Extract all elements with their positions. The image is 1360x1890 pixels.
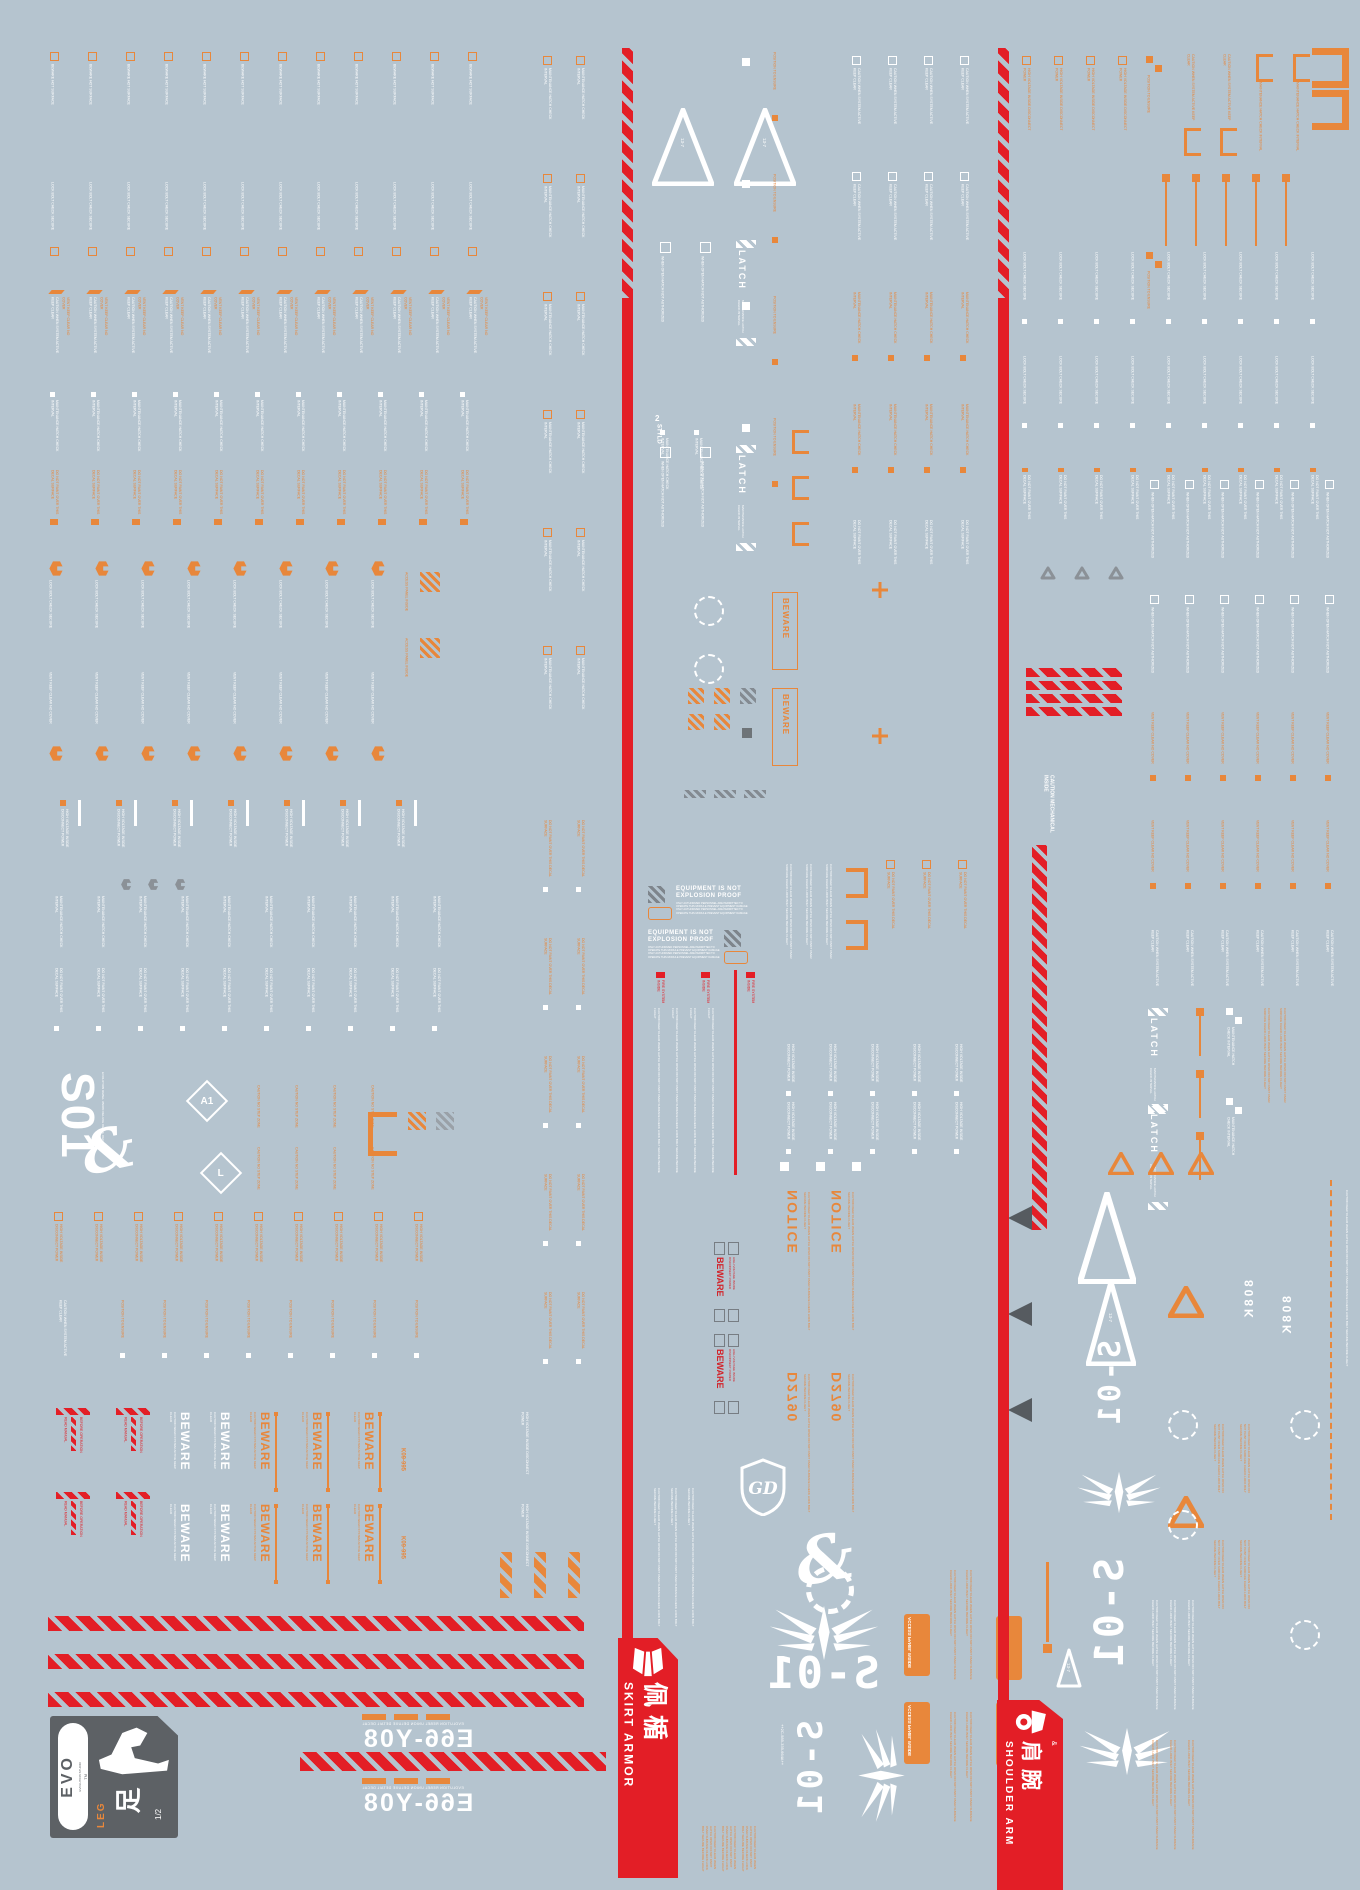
decal-sqtext: WHEN OPEN HATCH NOT AUTHORIZED <box>1290 480 1299 562</box>
decal-sqtext: HIGH VOLTAGE INSIDE DISCONNECT POWER <box>870 1044 879 1096</box>
decal-fire: FIRE SYSTEM INSIDE <box>701 972 710 1012</box>
decal-vhaz <box>500 1552 512 1598</box>
decal-vtext: 808K <box>1242 1280 1256 1405</box>
decal-sqtext: MAINTENANCE HATCH CHECK INTERVAL <box>576 646 585 726</box>
decal-vtext: DO NOT PAINT OVER THIS DECAL SURFACE <box>852 520 861 576</box>
decal-cbr <box>368 1112 397 1156</box>
decal-sqtext: HIGH VOLTAGE INSIDE DISCONNECT POWER <box>414 1212 423 1272</box>
decal-sqtext: CAUTION WHEN SYSTEM ACTIVE KEEP CLEAR <box>924 172 933 250</box>
decal-vtext: CAUTION WHEN SYSTEM ACTIVE KEEP CLEAR <box>1185 930 1194 990</box>
decal-sqtext: LOCK BOLT CHECK SECURE <box>1094 252 1099 324</box>
decal-sqtext: POSITION TO ENSURE <box>330 1300 335 1358</box>
decal-vtext: DO NOT PAINT OVER THIS DECAL SURFACE <box>960 520 969 576</box>
decal-vtext: CAUTION MECHANICAL INSIDE <box>1042 775 1055 835</box>
decal-loll <box>1162 174 1170 246</box>
decal-vtext: CAUTION NO STEP ZONE <box>332 1085 337 1137</box>
decal-sqtext: LOCK BOLT CHECK SECURE <box>1058 252 1063 324</box>
decal-sqtext: DO NOT PAINT OVER THIS DECAL SURFACE <box>1166 468 1175 531</box>
decal-micro: CAUTION KEEP CLEAR WHEN HATCH OPEN DO NO… <box>948 1570 956 1690</box>
decal-bar <box>1043 1644 1052 1653</box>
decal-sqtext: DO NOT PAINT OVER THIS DECAL SURFACE <box>1274 468 1283 531</box>
decal-sqtext: LOCK BOLT CHECK SECURE <box>1130 356 1135 428</box>
decal-sqtext: DO NOT PAINT OVER THIS DECAL SURFACE <box>132 470 141 525</box>
decal-loll <box>1192 174 1200 246</box>
decal-sqtext: WHEN OPEN HATCH NOT AUTHORIZED <box>1255 595 1264 677</box>
decal-sqtext: HIGH VOLTAGE INSIDE DISCONNECT POWER <box>954 1102 963 1154</box>
decal-sqtext: MAINTENANCE HATCH CHECK INTERVAL <box>337 392 346 452</box>
decal-bewcol: CAUTION WHEN SYSTEM ACTIVE KEEP CLEARBEW… <box>248 1504 278 1590</box>
decal-bar <box>134 800 137 826</box>
decal-slashtext: CAUTION WHEN SYSTEM ACTIVE KEEP CLEARVEN… <box>88 290 108 355</box>
decal-equip: EQUIPMENT IS NOTEXPLOSION PROOFONLY AUTH… <box>648 930 748 964</box>
decal-sqtext: POSITION TO ENSURE <box>772 418 778 487</box>
decal-micro: CAUTION KEEP CLEAR WHEN HATCH OPEN DO NO… <box>948 1712 956 1832</box>
decal-s01v: S-01 <box>1096 1340 1126 1458</box>
decal-bar <box>852 1162 861 1171</box>
decal-hex: VENT KEEP CLEAR NO COVER <box>232 672 249 762</box>
decal-hatch <box>714 688 730 704</box>
decal-sqtext: LOCK BOLT CHECK SECURE <box>240 182 249 256</box>
decal-vtext: CAUTION WHEN SYSTEM ACTIVE KEEP CLEAR <box>1150 930 1159 990</box>
decal-sqtext: CAUTION WHEN SYSTEM ACTIVE KEEP CLEAR <box>852 56 861 134</box>
decal-sqtext: LOCK BOLT CHECK SECURE <box>1058 356 1063 428</box>
decal-sqtext: BEWARE HOT SURFACE <box>240 52 249 134</box>
decal-bar <box>742 180 750 188</box>
decal-sqtext: DO NOT PAINT OVER THIS DECAL SURFACE <box>922 860 931 930</box>
evo-tm-mark: TM <box>83 1774 88 1780</box>
decal-hatch <box>688 688 704 704</box>
decal-sqtext: BEWARE HOT SURFACE <box>278 52 287 134</box>
decal-sqtext: MAINTENANCE HATCH CHECK INTERVAL <box>576 410 585 490</box>
decal-bewcol: CAUTION WHEN SYSTEM ACTIVE KEEP CLEARBEW… <box>352 1412 382 1498</box>
decal-sqtext: LOCK BOLT CHECK SECURE <box>316 182 325 256</box>
decal-sqtext: LOCK BOLT CHECK SECURE <box>430 182 439 256</box>
decal-hatch <box>744 790 766 798</box>
decal-sqtext: DO NOT PAINT OVER THIS DECAL SURFACE <box>886 860 895 930</box>
evo-part-label: LEG <box>96 1778 107 1828</box>
decal-hatch <box>740 688 756 704</box>
decal-sqtext: MAINTENANCE HATCH CHECK INTERVAL <box>924 404 933 473</box>
decal-micro: CAUTION KEEP CLEAR WHEN HATCH OPEN DO NO… <box>1344 1190 1348 1390</box>
decal-vtext: HIGH VOLTAGE INSIDE DISCONNECT POWER <box>520 1504 529 1574</box>
decal-access: ACCESS PANEL INSIDE <box>904 1702 930 1764</box>
decal-sqtext: DO NOT PAINT OVER THIS DECAL SURFACE <box>1310 468 1319 531</box>
decal-sqtext: LOCK BOLT CHECK SECURE <box>1094 356 1099 428</box>
decal-sqtext: DO NOT PAINT OVER THIS DECAL SURFACE <box>54 968 63 1031</box>
decal-slashtext: CAUTION WHEN SYSTEM ACTIVE KEEP CLEARVEN… <box>354 290 374 355</box>
decal-sqtext: MAINTENANCE HATCH CHECK INTERVAL <box>173 392 182 452</box>
decal-vtext: K09-995 <box>398 1536 405 1598</box>
decal-micro: CAUTION KEEP CLEAR WHEN HATCH OPEN DO NO… <box>740 1826 756 1876</box>
decal-vtext: NOTICE <box>828 1190 845 1340</box>
decal-sqtext: HIGH VOLTAGE INSIDE DISCONNECT POWER <box>94 1212 103 1272</box>
decal-micro: CAUTION KEEP CLEAR WHEN HATCH OPEN DO NO… <box>1212 1540 1224 1610</box>
decal-sqtext: WHEN OPEN HATCH NOT AUTHORIZED <box>1185 595 1194 677</box>
decal-bar <box>816 1162 825 1171</box>
decal-hazbar <box>1026 668 1122 677</box>
decal-latch: LATCHMAINTENANCE HATCH CHECK INTERVAL <box>736 445 756 551</box>
decal-vtext: MAINTENANCE HATCH CHECK INTERVAL <box>54 896 63 954</box>
decal-micro: CAUTION KEEP CLEAR WHEN HATCH OPEN DO NO… <box>802 1192 810 1332</box>
decal-vtext: CAUTION NO STEP ZONE <box>294 1147 299 1199</box>
decal-sqtext: MAINTENANCE HATCH CHECK INTERVAL <box>888 404 897 473</box>
decal-vhaz <box>568 1552 580 1598</box>
decal-hex: LOCK BOLT CHECK SECURE <box>278 560 295 650</box>
decal-circ <box>1168 1410 1198 1440</box>
decal-sqtext: MAINTENANCE HATCH CHECK INTERVAL <box>543 174 552 254</box>
decal-sqtext: CAUTION WHEN SYSTEM ACTIVE KEEP CLEAR <box>960 56 969 134</box>
decal-sqtext: DO NOT PAINT OVER THIS DECAL SURFACE <box>1094 468 1103 531</box>
decal-sqtext: MAINTENANCE HATCH CHECK INTERVAL <box>888 292 897 361</box>
decal-hazbar <box>1026 707 1122 716</box>
decal-latch: LATCHMAINTENANCE HATCH CHECK INTERVAL <box>736 240 756 346</box>
decal-sqtext: DO NOT PAINT OVER THIS DECAL SURFACE <box>1022 468 1031 531</box>
decal-sqtext: LOCK BOLT CHECK SECURE <box>88 182 97 256</box>
decal-readman: READ MANUALBEFORE OPERATION <box>56 1408 90 1457</box>
decal-hazbar <box>48 1616 584 1631</box>
decal-wing <box>1076 1470 1162 1520</box>
decal-sqtext: DO NOT PAINT OVER THIS DECAL SURFACE <box>180 968 189 1031</box>
decal-sqtext: DO NOT PAINT OVER THIS DECAL SURFACE <box>460 470 469 525</box>
decal-hex: VENT KEEP CLEAR NO COVER <box>186 672 203 762</box>
decal-sqtext: CAUTION WHEN SYSTEM ACTIVE KEEP CLEAR <box>960 172 969 250</box>
decal-sqtext: DO NOT PAINT OVER THIS DECAL SURFACE <box>543 938 552 1010</box>
decal-vtext: MAINTENANCE HATCH CHECK INTERVAL <box>180 896 189 954</box>
decal-circ <box>1168 1510 1198 1540</box>
decal-micro: CAUTION KEEP CLEAR WHEN HATCH OPEN DO NO… <box>784 864 792 959</box>
decal-bar <box>302 800 305 826</box>
decal-cbr <box>1256 54 1273 82</box>
decal-hex: VENT KEEP CLEAR NO COVER <box>140 672 157 762</box>
decal-sqtext: HIGH VOLTAGE INSIDE DISCONNECT POWER <box>396 800 405 849</box>
decal-sqtext: LOCK BOLT CHECK SECURE <box>1022 356 1027 428</box>
decal-sqtext: MAINTENANCE HATCH CHECK INTERVAL <box>296 392 305 452</box>
decal-sqtext: LOCK BOLT CHECK SECURE <box>202 182 211 256</box>
decal-e66: EVOLUTION REBEL UNION DELUXE DETAIL DECA… <box>362 1714 473 1751</box>
decal-vtext: CAUTION NO STEP ZONE <box>256 1085 261 1137</box>
decal-sqtext: DO NOT PAINT OVER THIS DECAL SURFACE <box>173 470 182 525</box>
decal-bewcol: CAUTION WHEN SYSTEM ACTIVE KEEP CLEARBEW… <box>208 1412 232 1498</box>
decal-sqtext: DO NOT PAINT OVER THIS DECAL SURFACE <box>1130 468 1139 531</box>
decal-sqtext: VENT KEEP CLEAR NO COVER <box>1220 712 1226 781</box>
decal-sqtext: VENT KEEP CLEAR NO COVER <box>1325 712 1331 781</box>
decal-readman: READ MANUALBEFORE OPERATION <box>56 1492 90 1541</box>
decal-sqtext: MAINTENANCE HATCH CHECK INTERVAL <box>543 646 552 726</box>
decal-vtext: DO NOT PAINT OVER THIS DECAL SURFACE <box>924 520 933 576</box>
decal-sqtext: VENT KEEP CLEAR NO COVER <box>1255 712 1261 781</box>
decal-s01v: S-01 <box>1090 1558 1130 1718</box>
decal-sqtext: DO NOT PAINT OVER THIS DECAL SURFACE <box>96 968 105 1031</box>
decal-slashtext: CAUTION WHEN SYSTEM ACTIVE KEEP CLEARVEN… <box>164 290 184 355</box>
decal-sqtext: WHEN OPEN HATCH NOT AUTHORIZED <box>660 242 671 344</box>
decal-micro: CAUTION KEEP CLEAR WHEN HATCH OPEN DO NO… <box>686 1488 694 1628</box>
decal-circ <box>694 596 724 626</box>
decal-sqtext: HIGH VOLTAGE INSIDE DISCONNECT POWER <box>870 1102 879 1154</box>
decal-bar <box>78 800 81 826</box>
decal-sqtext: HIGH VOLTAGE INSIDE DISCONNECT POWER <box>1118 56 1127 134</box>
shoulder-arm-label-en: SHOULDER ARM <box>1003 1741 1014 1881</box>
decal-hazbar <box>1026 681 1122 690</box>
decal-hatch <box>420 638 440 658</box>
decal-micro: CAUTION KEEP CLEAR WHEN HATCH OPEN DO NO… <box>802 1374 810 1514</box>
decal-bar <box>742 728 752 738</box>
decal-bewcol: CAUTION WHEN SYSTEM ACTIVE KEEP CLEARBEW… <box>208 1504 232 1590</box>
decal-cbr <box>1220 128 1237 156</box>
decal-micro: CAUTION KEEP CLEAR WHEN HATCH OPEN DO NO… <box>706 1008 714 1173</box>
decal-warntri <box>1188 1152 1214 1180</box>
decal-tri <box>1074 566 1090 585</box>
decal-vtext: D2790 <box>784 1372 801 1522</box>
decal-readman: READ MANUALBEFORE OPERATION <box>116 1408 150 1457</box>
decal-loll <box>1222 174 1230 246</box>
decal-sqtext: CAUTION WHEN SYSTEM ACTIVE KEEP CLEAR <box>924 56 933 134</box>
decal-hex: LOCK BOLT CHECK SECURE <box>370 560 387 650</box>
decal-bewcol: CAUTION WHEN SYSTEM ACTIVE KEEP CLEARBEW… <box>168 1412 192 1498</box>
decal-wing <box>1078 1726 1176 1782</box>
decal-sqtext: BEWARE HOT SURFACE <box>88 52 97 134</box>
decal-circ <box>1290 1410 1320 1440</box>
decal-vtext: CAUTION WHEN SYSTEM ACTIVE KEEP CLEAR <box>1325 930 1334 990</box>
decal-sqtext: VENT KEEP CLEAR NO COVER <box>1150 712 1156 781</box>
decal-hazbar <box>48 1654 584 1669</box>
decal-hex: LOCK BOLT CHECK SECURE <box>140 560 157 650</box>
shoulder-arm-ampersand: & <box>1050 1741 1057 1761</box>
decal-sqtext: POSITION TO ENSURE <box>204 1300 209 1358</box>
decal-vtext: MAINTENANCE HATCH CHECK INTERVAL <box>222 896 231 954</box>
decal-cbr <box>1184 128 1201 156</box>
decal-sqtext: VENT KEEP CLEAR NO COVER <box>1255 820 1261 889</box>
decal-vtext: MAINTENANCE HATCH CHECK INTERVAL <box>348 896 357 954</box>
decal-micro: CAUTION KEEP CLEAR WHEN HATCH OPEN DO NO… <box>1212 1424 1224 1494</box>
decal-sqtext: DO NOT PAINT OVER THIS DECAL SURFACE <box>138 968 147 1031</box>
decal-sqtext: DO NOT PAINT OVER THIS DECAL SURFACE <box>50 470 59 525</box>
decal-tri <box>1108 566 1124 585</box>
decal-sqtext: DO NOT PAINT OVER THIS DECAL SURFACE <box>576 938 585 1010</box>
decal-vtext: MAINTENANCE HATCH CHECK INTERVAL <box>1295 82 1300 152</box>
decal-sqtext: WHEN OPEN HATCH NOT AUTHORIZED <box>1325 595 1334 677</box>
decal-loll <box>1196 1008 1204 1056</box>
decal-sqtext: BEWARE HOT SURFACE <box>468 52 477 134</box>
decal-sqtext: VENT KEEP CLEAR NO COVER <box>1220 820 1226 889</box>
decal-cbr <box>1293 54 1310 82</box>
decal-sqtext: HIGH VOLTAGE INSIDE DISCONNECT POWER <box>912 1044 921 1096</box>
decal-vtext: CAUTION NO STEP ZONE <box>332 1147 337 1199</box>
decal-sqtext: LOCK BOLT CHECK SECURE <box>1202 356 1207 428</box>
decal-bar <box>414 800 417 826</box>
decal-sqtext: BEWARE HOT SURFACE <box>126 52 135 134</box>
decal-bar <box>246 800 249 826</box>
decal-sqtext: WHEN OPEN HATCH NOT AUTHORIZED <box>1150 595 1159 677</box>
decal-sqtext: LOCK BOLT CHECK SECURE <box>354 182 363 256</box>
vertical-red-stripe-left-hazard-top <box>622 48 633 298</box>
decal-sqtext: HIGH VOLTAGE INSIDE DISCONNECT POWER <box>374 1212 383 1272</box>
decal-hex: LOCK BOLT CHECK SECURE <box>48 560 65 650</box>
decal-vtext: MAINTENANCE HATCH CHECK INTERVAL <box>306 896 315 954</box>
decal-slashtext: CAUTION WHEN SYSTEM ACTIVE KEEP CLEARVEN… <box>50 290 70 355</box>
decal-loll <box>1196 1070 1204 1118</box>
decal-sqtext: LOCK BOLT CHECK SECURE <box>1166 252 1171 324</box>
decal-sqtext: HIGH VOLTAGE INSIDE DISCONNECT POWER <box>116 800 125 849</box>
vertical-red-stripe-right-hazard-top <box>998 48 1009 298</box>
decal-sqtext: MAINTENANCE HATCH CHECK INTERVAL <box>543 56 552 136</box>
decal-sqtext: DO NOT PAINT OVER THIS DECAL SURFACE <box>348 968 357 1031</box>
decal-hatch <box>714 790 736 798</box>
decal-slashtext: CAUTION WHEN SYSTEM ACTIVE KEEP CLEARVEN… <box>278 290 298 355</box>
decal-sqtext: HIGH VOLTAGE INSIDE DISCONNECT POWER <box>334 1212 343 1272</box>
decal-sqtext: DO NOT PAINT OVER THIS DECAL SURFACE <box>296 470 305 525</box>
decal-bar <box>734 970 737 1175</box>
decal-sqtext: HIGH VOLTAGE INSIDE DISCONNECT POWER <box>284 800 293 849</box>
decal-sqtext: DO NOT PAINT OVER THIS DECAL SURFACE <box>1058 468 1067 531</box>
decal-bar <box>1046 1562 1049 1642</box>
decal-sqtext: DO NOT PAINT OVER THIS DECAL SURFACE <box>958 860 967 930</box>
decal-sqtext: HIGH VOLTAGE INSIDE DISCONNECT POWER <box>786 1102 795 1154</box>
decal-hex: LOCK BOLT CHECK SECURE <box>324 560 341 650</box>
decal-hex: LOCK BOLT CHECK SECURE <box>94 560 111 650</box>
decal-sqtext: LOCK BOLT CHECK SECURE <box>1202 252 1207 324</box>
decal-micro: CAUTION KEEP CLEAR WHEN HATCH OPEN DO NO… <box>670 1008 678 1173</box>
decal-sqtext: CAUTION WHEN SYSTEM ACTIVE KEEP CLEAR <box>888 56 897 134</box>
decal-sqtext: CAUTION WHEN SYSTEM ACTIVE KEEP CLEAR <box>888 172 897 250</box>
decal-vtext: 808K <box>1280 1296 1294 1421</box>
decal-vtext: CAUTION WHEN SYSTEM ACTIVE KEEP CLEAR <box>1290 930 1299 990</box>
decal-sqtext: LOCK BOLT CHECK SECURE <box>1310 356 1315 428</box>
decal-sqtext: LOCK BOLT CHECK SECURE <box>468 182 477 256</box>
decal-micro: CAUTION KEEP CLEAR WHEN HATCH OPEN DO NO… <box>846 1192 854 1332</box>
decal-sqtext: HIGH VOLTAGE INSIDE DISCONNECT POWER <box>172 800 181 849</box>
decal-sqtext: BEWARE HOT SURFACE <box>164 52 173 134</box>
decal-sqtext: MAINTENANCE HATCH CHECK INTERVAL <box>576 174 585 254</box>
decal-sqtext: POSITION TO ENSURE <box>288 1300 293 1358</box>
decal-hatch <box>688 714 704 730</box>
decal-sqtext: HIGH VOLTAGE INSIDE DISCONNECT POWER <box>954 1044 963 1096</box>
svg-text:GD: GD <box>748 1479 778 1499</box>
decal-micro: CAUTION KEEP CLEAR WHEN HATCH OPEN DO NO… <box>1262 1008 1270 1108</box>
decal-sqtext: LOCK BOLT CHECK SECURE <box>126 182 135 256</box>
decal-sqtext: LOCK BOLT CHECK SECURE <box>1274 356 1279 428</box>
decal-tri <box>1040 566 1056 585</box>
decal-htext: 2 <box>655 408 659 426</box>
decal-equip: EQUIPMENT IS NOTEXPLOSION PROOFONLY AUTH… <box>648 886 748 920</box>
decal-vtext: ++2C-585-335-664A++ <box>780 1724 785 1834</box>
decal-bar <box>190 800 193 826</box>
decal-sqtext: MAINTENANCE HATCH CHECK INTERVAL <box>576 528 585 608</box>
decal-s01logo: S01&EVOLUTION REBEL UNION DELUXE DETAIL … <box>56 1072 104 1204</box>
decal-gd: GD <box>740 1458 786 1521</box>
decal-micro: CAUTION KEEP CLEAR WHEN HATCH OPEN DO NO… <box>964 1570 972 1690</box>
decal-bewframe: BEWAREHIGH VOLTAGE INSIDE DISCONNECT POW… <box>714 1334 739 1414</box>
decal-slashtext: CAUTION WHEN SYSTEM ACTIVE KEEP CLEARVEN… <box>392 290 412 355</box>
decal-sqtext: MAINTENANCE HATCH CHECK INTERVAL <box>50 392 59 452</box>
decal-sqtext: MAINTENANCE HATCH CHECK INTERVAL <box>576 292 585 372</box>
decal-vtext: MAINTENANCE HATCH CHECK INTERVAL <box>432 896 441 954</box>
decal-bewcol: CAUTION WHEN SYSTEM ACTIVE KEEP CLEARBEW… <box>168 1504 192 1590</box>
decal-micro: CAUTION KEEP CLEAR WHEN HATCH OPEN DO NO… <box>700 1826 716 1876</box>
decal-sqtext: LOCK BOLT CHECK SECURE <box>1022 252 1027 324</box>
decal-hatch <box>684 790 706 798</box>
decal-sqtext: POSITION TO ENSURE <box>162 1300 167 1358</box>
decal-micro: CAUTION KEEP CLEAR WHEN HATCH OPEN DO NO… <box>804 864 812 959</box>
decal-sqtext: MAINTENANCE HATCH CHECK INTERVAL <box>255 392 264 452</box>
decal-bewbox: BEWARE <box>772 592 798 670</box>
decal-cbr <box>792 430 809 454</box>
decal-vtext: HIGH VOLTAGE INSIDE DISCONNECT POWER <box>520 1412 529 1482</box>
decal-tri: 13-7 <box>652 108 714 191</box>
decal-sqtext: POSITION TO ENSURE <box>772 52 778 121</box>
decal-sqtext: WHEN OPEN HATCH NOT AUTHORIZED <box>1290 595 1299 677</box>
decal-sqtext: MAINTENANCE HATCH CHECK INTERVAL <box>543 410 552 490</box>
evo-brand-pill: EVO EVOLUTION STUDIO TM <box>58 1723 88 1830</box>
decal-micro: CAUTION KEEP CLEAR WHEN HATCH OPEN DO NO… <box>824 864 832 959</box>
decal-hatch <box>408 1112 426 1130</box>
decal-sqtext: MAINTENANCE HATCH CHECK INTERVAL <box>460 392 469 452</box>
evo-part-label-cn: 足 <box>109 1787 146 1813</box>
decal-sqtext: HIGH VOLTAGE INSIDE DISCONNECT POWER <box>60 800 69 849</box>
decal-sqtext: VENT KEEP CLEAR NO COVER <box>1150 820 1156 889</box>
decal-cbr <box>846 868 868 898</box>
decal-plus <box>872 728 888 749</box>
decal-micro: CAUTION KEEP CLEAR WHEN HATCH OPEN DO NO… <box>846 1374 854 1514</box>
decal-fire: FIRE SYSTEM INSIDE <box>656 972 665 1012</box>
decal-sqtext: WHEN OPEN HATCH NOT AUTHORIZED <box>1220 480 1229 562</box>
decal-sqtext: DO NOT PAINT OVER THIS DECAL SURFACE <box>1202 468 1211 531</box>
decal-bar <box>742 302 750 310</box>
decal-sqtext: HIGH VOLTAGE INSIDE DISCONNECT POWER <box>294 1212 303 1272</box>
decal-vtext: CAUTION WHEN SYSTEM ACTIVE KEEP CLEAR <box>1222 54 1231 124</box>
decal-micro: CAUTION KEEP CLEAR WHEN HATCH OPEN DO NO… <box>688 1008 696 1173</box>
decal-hex: LOCK BOLT CHECK SECURE <box>232 560 249 650</box>
decal-vtext: CAUTION NO STEP ZONE <box>256 1147 261 1199</box>
decal-bewcol: CAUTION WHEN SYSTEM ACTIVE KEEP CLEARBEW… <box>300 1412 330 1498</box>
evo-logo-block: EVO EVOLUTION STUDIO TM LEG 足 1/2 <box>50 1716 178 1838</box>
decal-vtext: CAUTION WHEN SYSTEM ACTIVE KEEP CLEAR <box>1220 930 1229 990</box>
decal-micro: CAUTION KEEP CLEAR WHEN HATCH OPEN DO NO… <box>964 1712 972 1832</box>
decal-micro: CAUTION KEEP CLEAR WHEN HATCH OPEN DO NO… <box>652 1488 660 1628</box>
decal-sqtext: HIGH VOLTAGE INSIDE DISCONNECT POWER <box>828 1102 837 1154</box>
decal-vtext: DO NOT PAINT OVER THIS DECAL SURFACE <box>888 520 897 576</box>
decal-sqtext: POSITION TO ENSURE <box>772 296 778 365</box>
decal-hex <box>147 878 160 891</box>
decal-sqtext: MAINTENANCE HATCH CHECK INTERVAL <box>694 430 703 498</box>
decal-sqtext: BEWARE HOT SURFACE <box>430 52 439 134</box>
decal-sqtext: LOCK BOLT CHECK SECURE <box>278 182 287 256</box>
decal-loll <box>1252 174 1260 246</box>
decal-hazbar <box>300 1752 606 1771</box>
decal-vtext: CAUTION WHEN SYSTEM ACTIVE KEEP CLEAR <box>1255 930 1264 990</box>
decal-vtext: MAINTENANCE HATCH CHECK INTERVAL <box>264 896 273 954</box>
decal-vtext: NOTICE <box>784 1190 801 1340</box>
mecha-leg-silhouette-icon <box>92 1724 174 1776</box>
decal-sqtext: POSITION TO ENSURE <box>414 1300 419 1358</box>
decal-sqtext: POSITION TO ENSURE <box>120 1300 125 1358</box>
decal-sqtext: BEWARE HOT SURFACE <box>50 52 59 134</box>
decal-sqtext: DO NOT PAINT OVER THIS DECAL SURFACE <box>576 1056 585 1128</box>
decal-micro: CAUTION KEEP CLEAR WHEN HATCH OPEN DO NO… <box>720 1826 736 1876</box>
decal-sqtext: BEWARE HOT SURFACE <box>354 52 363 134</box>
decal-sqtext: WHEN OPEN HATCH NOT AUTHORIZED <box>1325 480 1334 562</box>
decal-bewcol: CAUTION WHEN SYSTEM ACTIVE KEEP CLEARBEW… <box>352 1504 382 1590</box>
decal-sqtext: MAINTENANCE HATCH CHECK INTERVAL <box>660 430 669 498</box>
decal-sqtext: VENT KEEP CLEAR NO COVER <box>1185 712 1191 781</box>
decal-tri <box>1078 1192 1136 1289</box>
decal-sqtext: MAINTENANCE HATCH CHECK INTERVAL <box>852 292 861 361</box>
evo-studio-text: EVOLUTION STUDIO <box>78 1762 82 1792</box>
decal-slashtext: CAUTION WHEN SYSTEM ACTIVE KEEP CLEARVEN… <box>126 290 146 355</box>
decal-sqtext: MAINTENANCE HATCH CHECK INTERVAL <box>91 392 100 452</box>
decal-dblsq: POSITION TO ENSURE <box>1146 56 1162 121</box>
evo-brand-text: EVO <box>59 1755 77 1798</box>
decal-sqtext: WHEN OPEN HATCH NOT AUTHORIZED <box>1185 480 1194 562</box>
